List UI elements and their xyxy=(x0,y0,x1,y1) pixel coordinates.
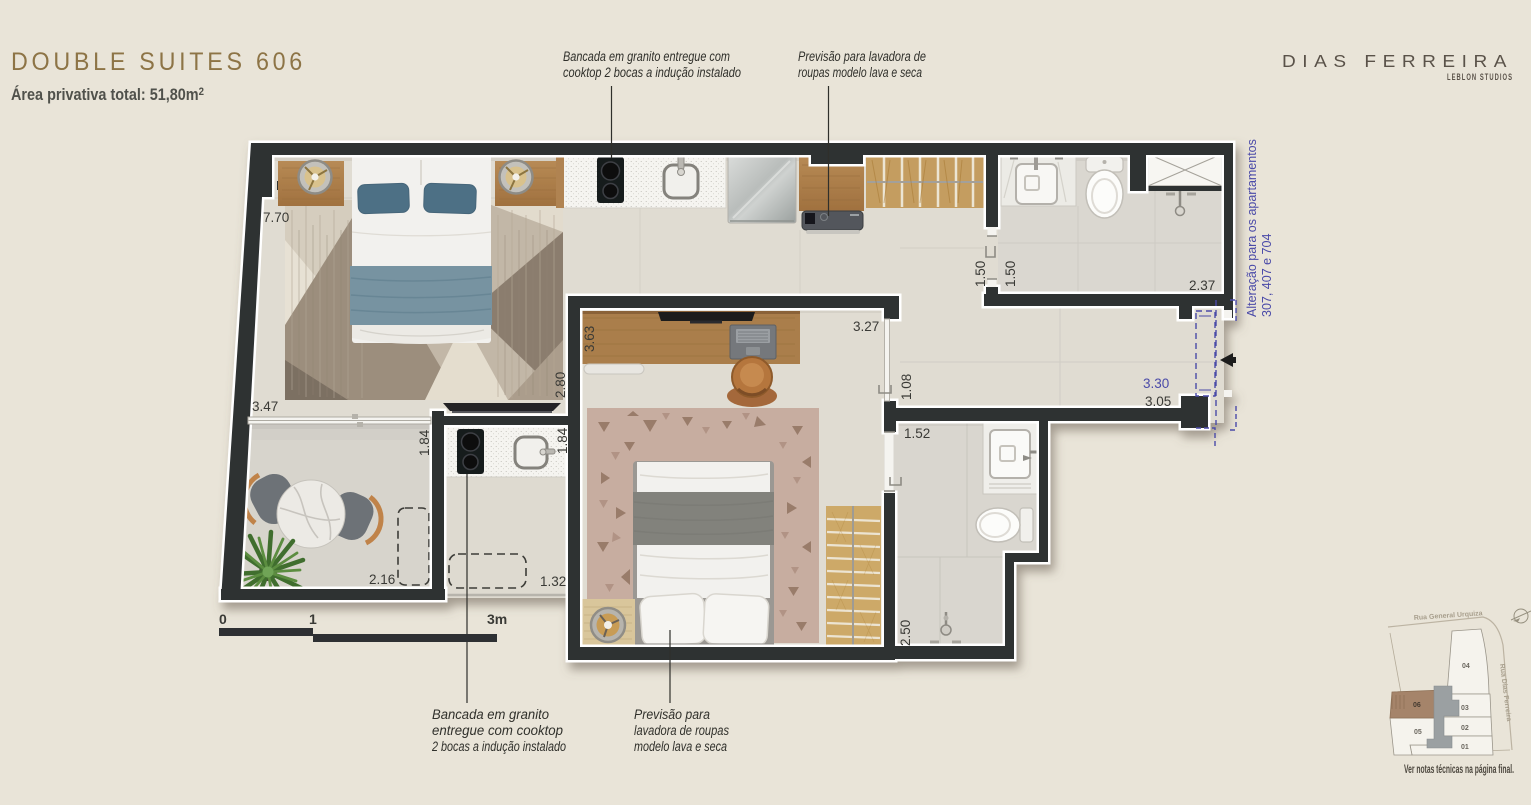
svg-text:DOUBLE SUITES 606: DOUBLE SUITES 606 xyxy=(11,48,306,76)
svg-text:01: 01 xyxy=(1461,744,1469,751)
svg-text:3.30: 3.30 xyxy=(1143,376,1169,391)
svg-text:0: 0 xyxy=(219,611,227,627)
svg-text:cooktop 2 bocas a indução inst: cooktop 2 bocas a indução instalado xyxy=(563,65,741,80)
svg-text:1.84: 1.84 xyxy=(555,427,570,454)
svg-text:1.52: 1.52 xyxy=(904,426,930,441)
svg-text:Previsão para: Previsão para xyxy=(634,707,710,722)
svg-text:LEBLON STUDIOS: LEBLON STUDIOS xyxy=(1447,72,1513,82)
svg-text:1: 1 xyxy=(309,611,317,627)
svg-text:Alteração para os apartamentos: Alteração para os apartamentos xyxy=(1245,139,1259,317)
svg-text:Área privativa total: 51,80m2: Área privativa total: 51,80m2 xyxy=(11,85,204,104)
svg-text:3.47: 3.47 xyxy=(252,399,278,414)
svg-text:2.80: 2.80 xyxy=(553,372,568,398)
svg-text:2 bocas a indução instalado: 2 bocas a indução instalado xyxy=(431,739,566,754)
svg-text:Previsão para lavadora de: Previsão para lavadora de xyxy=(798,49,926,64)
svg-text:03: 03 xyxy=(1461,705,1469,712)
svg-text:307, 407 e 704: 307, 407 e 704 xyxy=(1260,234,1274,317)
svg-text:3.05: 3.05 xyxy=(1145,394,1171,409)
svg-text:lavadora de roupas: lavadora de roupas xyxy=(634,723,729,738)
svg-text:1.84: 1.84 xyxy=(417,429,432,456)
svg-text:7.70: 7.70 xyxy=(263,210,289,225)
svg-text:Bancada em granito: Bancada em granito xyxy=(432,707,549,722)
svg-text:05: 05 xyxy=(1414,729,1422,736)
svg-text:02: 02 xyxy=(1461,725,1469,732)
svg-text:3.63: 3.63 xyxy=(582,326,597,352)
svg-text:04: 04 xyxy=(1462,663,1470,670)
svg-text:DIAS FERREIRA: DIAS FERREIRA xyxy=(1282,51,1513,71)
svg-text:Bancada em granito entregue co: Bancada em granito entregue com xyxy=(563,49,730,64)
svg-text:modelo lava e seca: modelo lava e seca xyxy=(634,739,727,754)
svg-text:Ver notas técnicas na página f: Ver notas técnicas na página final. xyxy=(1404,764,1514,776)
svg-text:2.37: 2.37 xyxy=(1189,278,1215,293)
svg-text:1.50: 1.50 xyxy=(973,261,988,287)
svg-text:1.32: 1.32 xyxy=(540,574,566,589)
svg-text:1.08: 1.08 xyxy=(899,374,914,400)
svg-text:entregue com cooktop: entregue com cooktop xyxy=(432,723,563,738)
svg-text:3m: 3m xyxy=(487,611,507,627)
svg-text:1.50: 1.50 xyxy=(1003,261,1018,287)
svg-text:2.50: 2.50 xyxy=(898,620,913,646)
svg-text:2.16: 2.16 xyxy=(369,572,395,587)
svg-text:3.27: 3.27 xyxy=(853,319,879,334)
svg-text:06: 06 xyxy=(1413,702,1421,709)
svg-text:roupas modelo lava e seca: roupas modelo lava e seca xyxy=(798,65,922,80)
